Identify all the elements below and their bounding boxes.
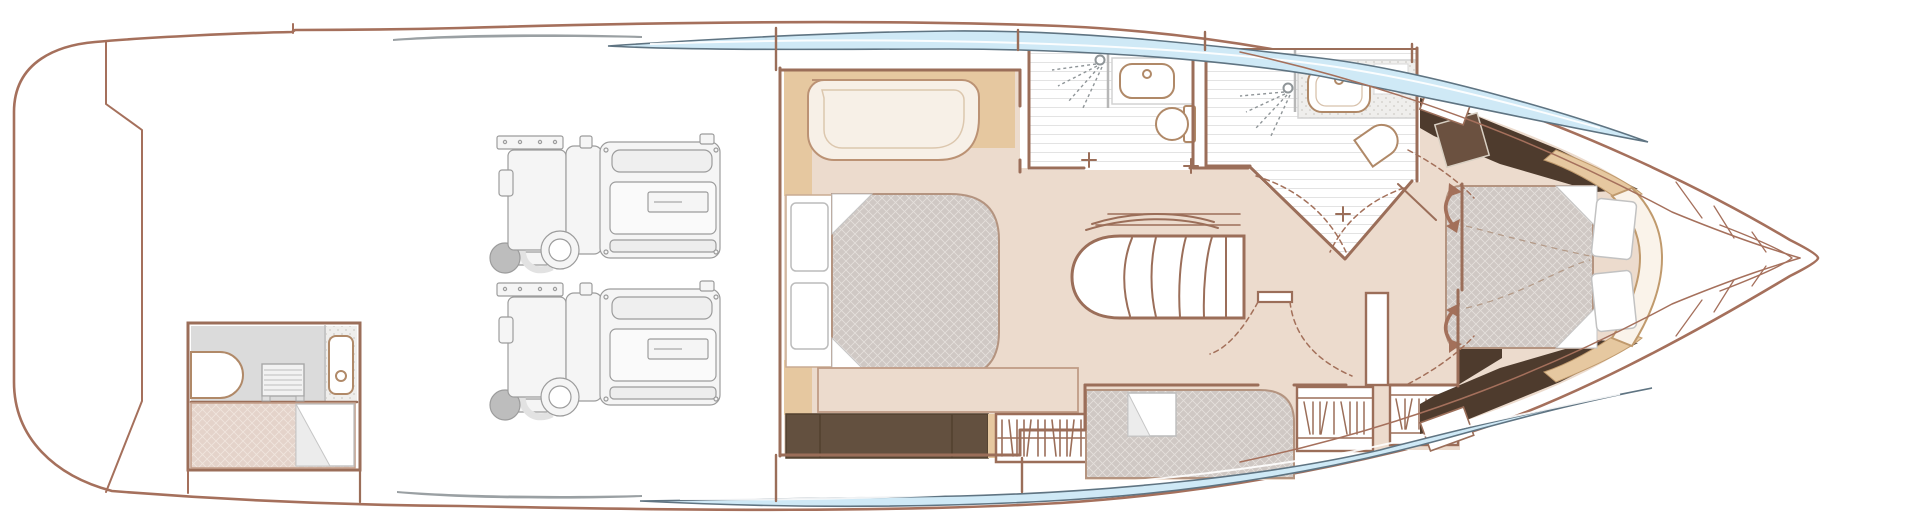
master-bed-mattress	[832, 194, 999, 378]
shower-seat	[262, 364, 304, 401]
toilet	[191, 352, 243, 398]
pillow	[1591, 198, 1637, 260]
guest-bed-mattress	[1086, 390, 1294, 478]
master-bathroom	[1029, 50, 1195, 170]
open-door-leaf	[1258, 292, 1292, 302]
sink-unit	[1112, 58, 1193, 104]
pillow	[791, 203, 828, 271]
open-door-leaf	[1366, 293, 1388, 385]
master-cabinetry	[786, 414, 996, 458]
pillow	[791, 283, 828, 349]
engine-starboard	[490, 281, 720, 420]
pillow	[296, 404, 354, 466]
sink-unit	[329, 336, 353, 394]
pillow	[1128, 393, 1176, 436]
hanging-locker	[1297, 387, 1373, 451]
stair-well	[1072, 236, 1244, 318]
pillow	[1591, 270, 1637, 332]
floor-plan-canvas	[0, 0, 1920, 532]
engine-port	[490, 134, 720, 273]
toilet	[1156, 106, 1195, 142]
foot-bench	[818, 368, 1078, 412]
